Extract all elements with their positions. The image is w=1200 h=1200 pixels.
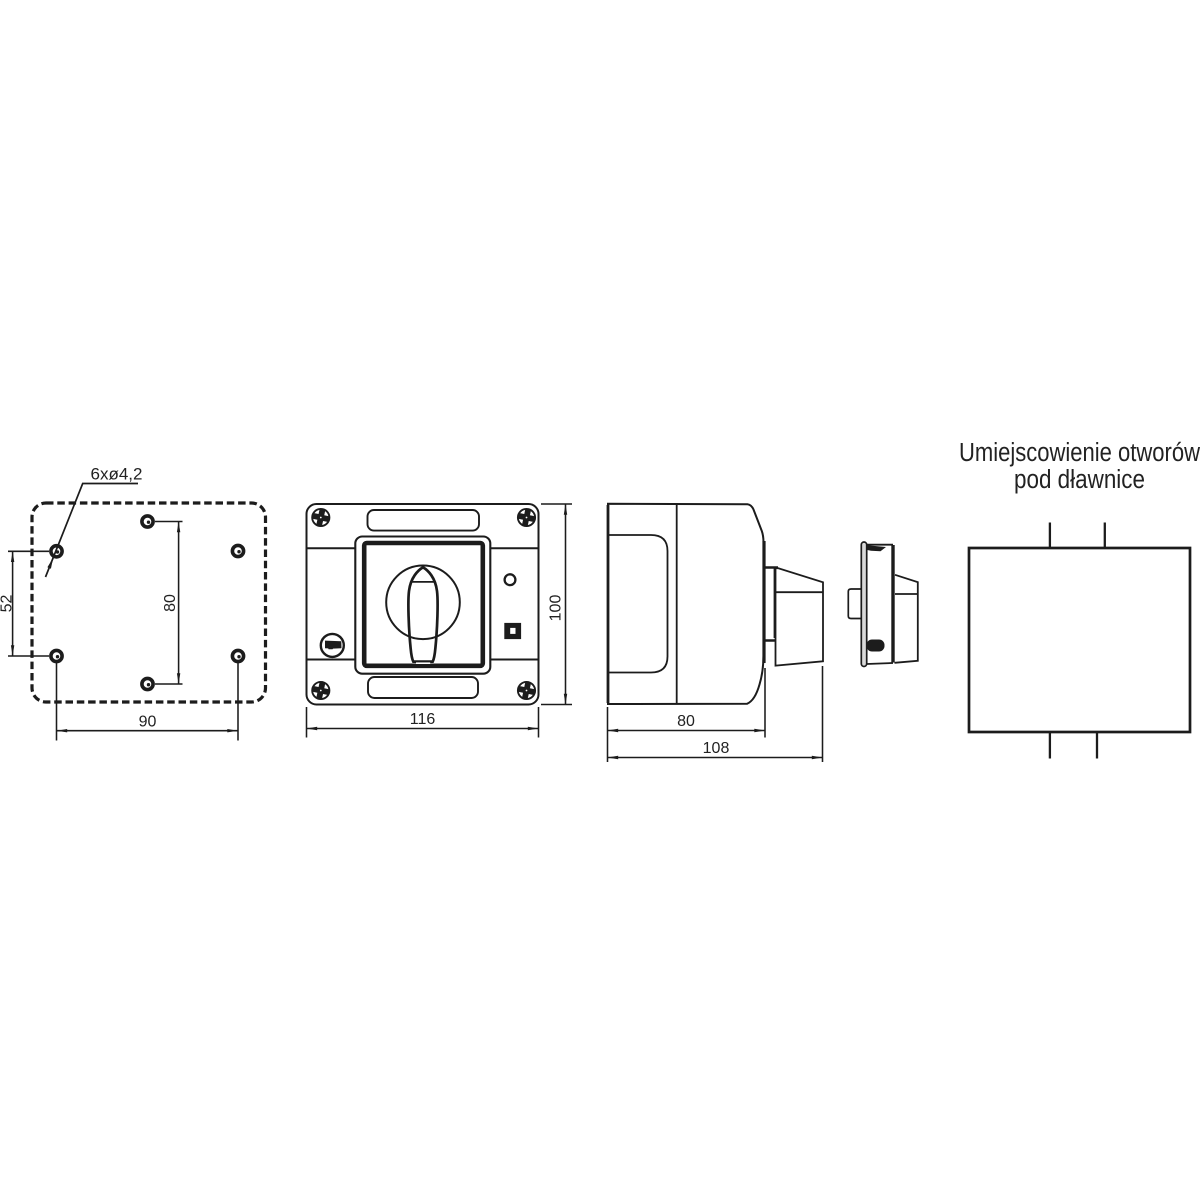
svg-text:80: 80 — [677, 713, 695, 730]
svg-text:100: 100 — [548, 595, 565, 622]
svg-text:52: 52 — [0, 595, 16, 613]
svg-text:116: 116 — [410, 711, 436, 728]
svg-text:6xø4,2: 6xø4,2 — [91, 465, 143, 484]
svg-text:80: 80 — [162, 594, 179, 612]
svg-text:108: 108 — [703, 740, 730, 757]
svg-text:pod dławnice: pod dławnice — [1014, 466, 1145, 494]
svg-text:Umiejscowienie otworów: Umiejscowienie otworów — [959, 439, 1200, 467]
svg-text:90: 90 — [139, 714, 157, 731]
